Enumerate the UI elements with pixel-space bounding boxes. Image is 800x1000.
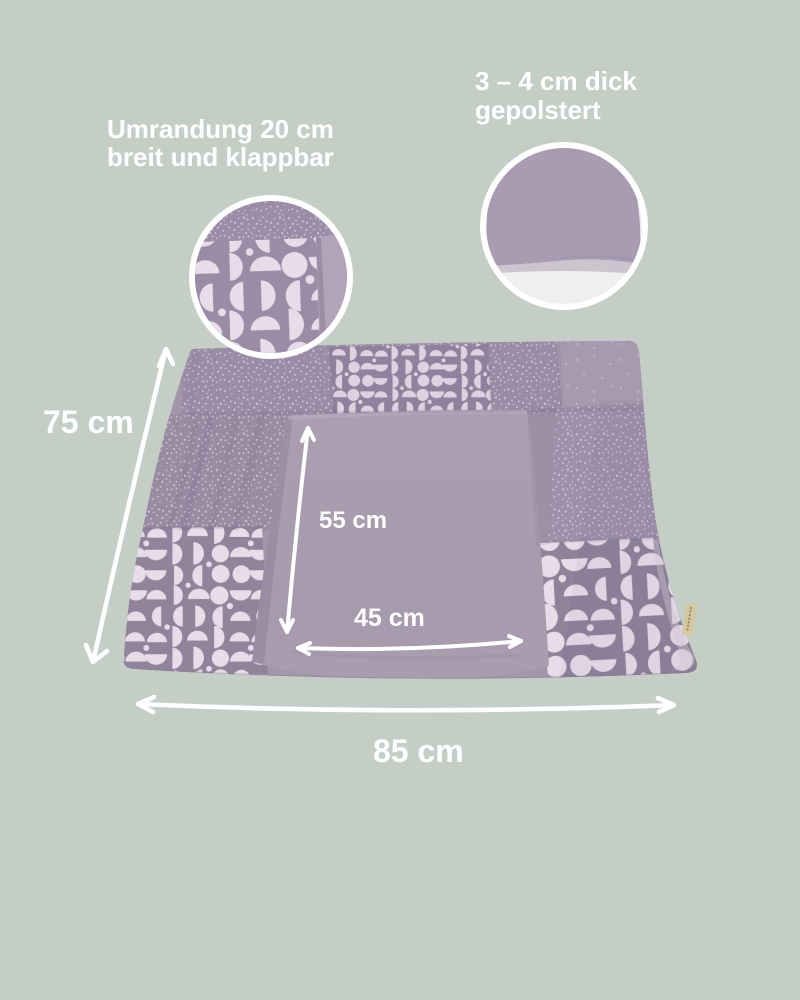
svg-text:85 cm: 85 cm	[373, 733, 464, 769]
svg-text:Umrandung 20 cm: Umrandung 20 cm	[107, 114, 334, 144]
svg-text:gepolstert: gepolstert	[475, 95, 601, 125]
svg-text:3 – 4 cm dick: 3 – 4 cm dick	[475, 66, 637, 96]
svg-text:55 cm: 55 cm	[319, 507, 387, 534]
svg-text:45 cm: 45 cm	[354, 604, 425, 632]
svg-text:breit und klappbar: breit und klappbar	[107, 142, 334, 172]
svg-text:75 cm: 75 cm	[43, 404, 134, 440]
